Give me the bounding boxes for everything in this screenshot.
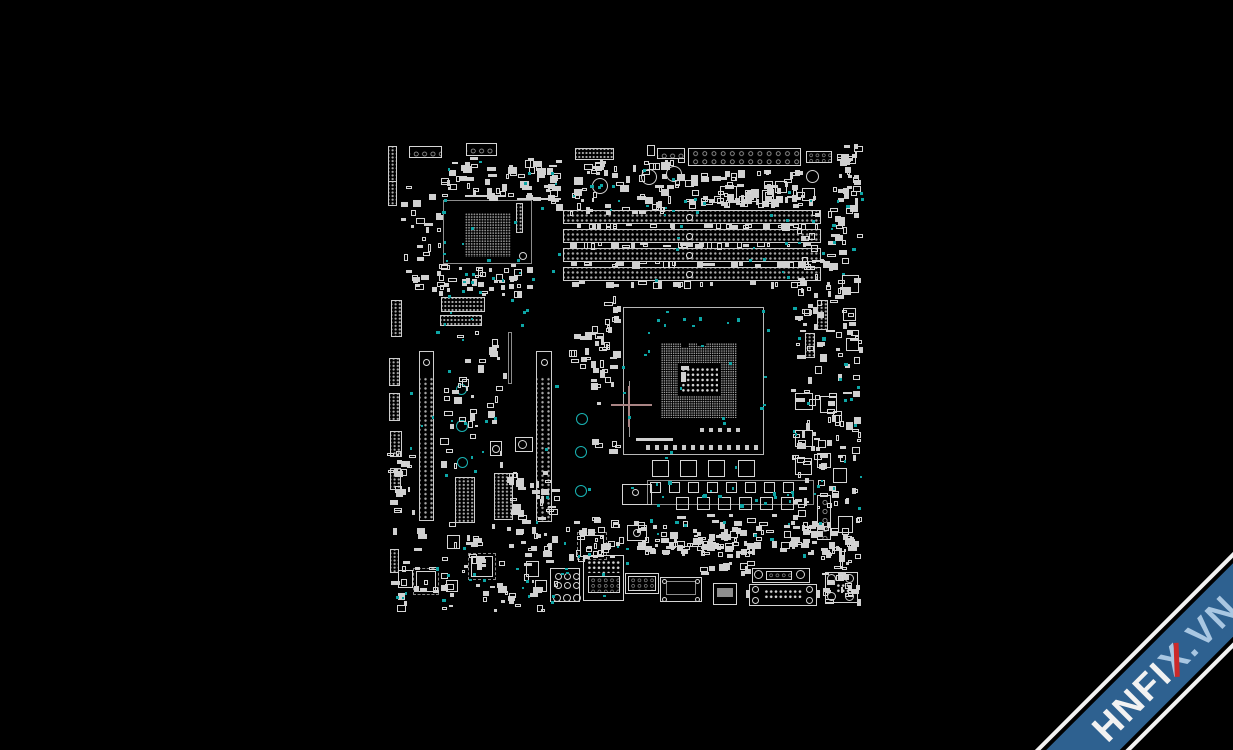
smd-part xyxy=(830,300,838,303)
smd-part xyxy=(552,536,559,543)
smd-part xyxy=(570,243,577,248)
test-point xyxy=(737,318,740,321)
smd-part xyxy=(701,173,707,176)
smd-part xyxy=(854,357,859,364)
smd-part xyxy=(731,173,738,180)
smd-part xyxy=(544,546,550,551)
pin-header xyxy=(390,549,399,573)
test-point xyxy=(831,228,833,230)
smd-part xyxy=(527,267,533,274)
smd-part xyxy=(817,342,822,347)
smd-part xyxy=(515,604,520,608)
smd-part xyxy=(848,585,852,590)
smd-part xyxy=(846,536,852,540)
smd-part xyxy=(509,478,513,485)
smd-part xyxy=(725,171,730,176)
smd-part xyxy=(541,609,545,612)
smd-part xyxy=(465,195,505,197)
smd-part xyxy=(615,263,618,266)
smd-part xyxy=(771,282,774,289)
test-point xyxy=(566,572,568,574)
smd-part xyxy=(756,199,759,205)
smd-part xyxy=(538,517,547,520)
smd-part xyxy=(606,210,611,214)
smd-part xyxy=(670,160,674,166)
pin-header xyxy=(388,146,397,182)
test-point xyxy=(664,324,667,327)
test-point xyxy=(396,596,399,599)
selection-crosshair[interactable] xyxy=(628,386,630,427)
smd-part xyxy=(707,242,712,249)
smd-part xyxy=(577,223,580,228)
dimm-slot-3[interactable] xyxy=(563,248,821,262)
smd-part xyxy=(509,597,515,604)
test-point xyxy=(565,568,567,570)
smd-part xyxy=(556,204,564,211)
smd-part xyxy=(414,586,419,592)
test-point xyxy=(463,547,466,550)
smd-part xyxy=(843,575,849,580)
pin-header xyxy=(388,181,397,206)
smd-part xyxy=(476,584,479,587)
smd-part xyxy=(541,496,544,503)
smd-part xyxy=(448,187,451,190)
smd-part xyxy=(490,586,495,589)
test-point xyxy=(710,490,712,492)
smd-part xyxy=(611,242,618,248)
smd-part xyxy=(655,185,664,188)
smd-part xyxy=(823,261,830,268)
smd-part xyxy=(393,528,397,535)
test-point xyxy=(696,211,699,214)
smd-part xyxy=(611,382,614,386)
smd-part xyxy=(831,531,838,536)
test-point xyxy=(602,573,605,576)
test-point xyxy=(555,385,558,388)
smd-part xyxy=(446,449,453,453)
smd-part xyxy=(691,180,698,185)
smd-part xyxy=(466,278,470,284)
test-point xyxy=(444,241,446,243)
smd-part xyxy=(815,213,821,217)
test-point xyxy=(561,573,563,575)
test-point xyxy=(644,354,647,357)
smd-part xyxy=(697,262,703,268)
smd-part xyxy=(827,580,835,583)
smd-part xyxy=(858,340,861,343)
test-point xyxy=(485,420,488,423)
smd-part xyxy=(608,541,616,547)
smd-part xyxy=(795,499,802,502)
smd-part xyxy=(518,515,527,520)
smd-part xyxy=(838,198,843,202)
smd-part xyxy=(644,161,649,166)
smd-part xyxy=(721,177,727,180)
smd-part xyxy=(754,542,758,546)
pcie-x16-slot[interactable] xyxy=(419,351,434,521)
test-point xyxy=(803,554,806,557)
capacitor xyxy=(806,170,819,183)
smd-part xyxy=(450,424,454,430)
smd-part xyxy=(639,211,646,215)
atx-24pin-power-connector[interactable] xyxy=(688,148,801,166)
smd-part xyxy=(645,537,649,543)
test-point xyxy=(860,192,863,195)
test-point xyxy=(517,259,520,262)
smd-part xyxy=(798,203,802,206)
smd-part xyxy=(802,431,806,437)
smd-part xyxy=(836,575,843,581)
smd-part xyxy=(401,579,407,586)
smd-part xyxy=(424,223,433,226)
test-point xyxy=(675,521,678,524)
smd-part xyxy=(808,377,812,384)
test-point xyxy=(643,169,646,172)
smd-part xyxy=(423,252,429,256)
test-point xyxy=(786,219,788,221)
smd-part xyxy=(571,359,580,364)
test-point xyxy=(852,248,855,251)
smd-part xyxy=(737,242,742,248)
smd-part xyxy=(403,561,410,564)
test-point xyxy=(479,161,481,163)
selection-crosshair[interactable] xyxy=(611,404,652,406)
smd-part xyxy=(584,242,587,249)
smd-part xyxy=(847,330,853,335)
test-point xyxy=(666,311,669,314)
smd-part xyxy=(543,471,547,475)
smd-part xyxy=(824,526,829,531)
smd-part xyxy=(527,193,532,199)
capacitor xyxy=(573,594,581,602)
smd-part xyxy=(803,522,808,529)
smd-part xyxy=(791,389,797,392)
smd-part xyxy=(593,551,598,558)
smd-part xyxy=(643,243,648,248)
smd-part xyxy=(600,370,605,377)
test-point xyxy=(672,178,675,181)
smd-part xyxy=(585,357,591,360)
test-point xyxy=(448,168,450,170)
test-point xyxy=(812,220,815,223)
smd-part xyxy=(475,331,479,335)
smd-part xyxy=(541,489,549,494)
smd-part xyxy=(422,237,426,241)
smd-part xyxy=(595,538,598,542)
test-point xyxy=(524,182,526,184)
smd-part xyxy=(792,195,797,202)
smd-part xyxy=(829,393,837,398)
power-connector xyxy=(628,576,656,591)
smd-part xyxy=(494,280,498,283)
smd-part xyxy=(546,560,554,563)
test-point xyxy=(844,399,847,402)
front-panel-header[interactable] xyxy=(455,477,475,523)
smd-part xyxy=(755,264,760,267)
test-point xyxy=(753,247,755,249)
smd-part xyxy=(404,254,408,261)
smd-part xyxy=(600,536,603,539)
test-point xyxy=(521,324,524,327)
smd-part xyxy=(700,282,703,287)
test-point xyxy=(793,307,796,310)
smd-part xyxy=(537,177,540,182)
smd-part xyxy=(678,158,685,163)
smd-part xyxy=(667,185,674,189)
smd-part xyxy=(449,605,453,608)
dimm-slot-4[interactable] xyxy=(563,267,821,281)
smd-part xyxy=(798,510,806,517)
test-point xyxy=(668,481,672,485)
fan-header[interactable] xyxy=(657,148,685,159)
smd-part xyxy=(582,188,587,191)
smd-part xyxy=(797,355,806,358)
smd-part xyxy=(842,567,848,570)
smd-part xyxy=(707,514,715,517)
smd-part xyxy=(452,390,459,395)
smd-part xyxy=(442,607,446,610)
smd-part xyxy=(740,261,743,266)
smd-part xyxy=(532,527,536,534)
test-point xyxy=(612,185,615,188)
smd-part xyxy=(745,566,749,572)
smd-part xyxy=(464,565,468,568)
smd-part xyxy=(579,281,584,284)
test-point xyxy=(410,447,412,449)
smd-part xyxy=(855,554,861,559)
test-point xyxy=(767,329,770,332)
smd-part xyxy=(439,215,443,220)
smd-part xyxy=(442,557,448,561)
smd-part xyxy=(594,543,597,549)
smd-part xyxy=(677,516,686,519)
smd-part xyxy=(852,447,860,454)
test-point xyxy=(763,404,766,407)
smd-part xyxy=(848,313,854,317)
smd-part xyxy=(840,421,845,427)
smd-part xyxy=(801,224,806,231)
smd-part xyxy=(677,545,683,551)
smd-part xyxy=(821,548,828,551)
smd-part xyxy=(781,223,789,230)
smd-part xyxy=(487,193,495,199)
test-point xyxy=(822,252,825,255)
smd-part xyxy=(724,193,728,197)
mosfet xyxy=(697,497,710,510)
smd-part xyxy=(723,534,731,540)
test-point xyxy=(795,433,798,436)
smd-part xyxy=(444,396,450,401)
cpu-power-connector[interactable] xyxy=(806,151,832,163)
smd-part xyxy=(846,498,849,501)
test-point xyxy=(463,281,466,284)
smd-part xyxy=(785,197,789,203)
inductor xyxy=(708,460,725,477)
dimm-slot-1[interactable] xyxy=(563,210,821,224)
test-point xyxy=(735,466,738,469)
smd-part xyxy=(798,278,805,281)
test-point xyxy=(526,580,529,583)
smd-part xyxy=(670,532,678,539)
smd-part xyxy=(784,525,790,528)
smd-part xyxy=(701,551,705,555)
smd-part xyxy=(613,226,617,229)
test-point xyxy=(749,259,753,263)
test-point xyxy=(487,259,490,262)
test-point xyxy=(792,494,794,496)
test-point xyxy=(514,221,517,224)
smd-part xyxy=(709,199,716,203)
smd-part xyxy=(525,553,531,557)
smd-part xyxy=(390,500,398,505)
test-point xyxy=(770,538,774,542)
capacitor xyxy=(806,586,813,593)
smd-part xyxy=(848,158,853,161)
smd-part xyxy=(475,425,478,428)
smd-part xyxy=(500,451,503,454)
smd-part xyxy=(681,372,686,382)
smd-part xyxy=(805,501,809,504)
smd-part xyxy=(589,209,592,212)
smd-part xyxy=(793,515,798,519)
smd-part xyxy=(772,541,777,547)
smd-part xyxy=(406,186,412,189)
smd-part xyxy=(556,160,562,163)
smd-part xyxy=(834,501,838,506)
test-point xyxy=(494,417,497,420)
smd-part xyxy=(704,177,708,182)
fan-header[interactable] xyxy=(466,143,497,156)
smd-part xyxy=(801,195,805,198)
smd-part xyxy=(396,454,399,458)
smd-part xyxy=(454,463,457,469)
test-point xyxy=(839,378,842,381)
test-point xyxy=(545,448,548,451)
smd-part xyxy=(483,591,488,596)
smd-part xyxy=(613,522,618,525)
smd-part xyxy=(753,192,758,198)
smd-part xyxy=(592,439,599,445)
smd-part xyxy=(848,590,853,596)
smd-part xyxy=(533,161,542,167)
test-point xyxy=(465,273,468,276)
test-point xyxy=(850,398,853,401)
smd-part xyxy=(697,532,701,536)
boardview-canvas[interactable]: HNFIX.VN xyxy=(0,0,1233,750)
test-point xyxy=(807,402,810,405)
fan-header[interactable] xyxy=(409,146,442,158)
smd-part xyxy=(636,438,673,441)
smd-part xyxy=(663,261,669,268)
smd-part xyxy=(684,281,691,288)
test-point xyxy=(623,392,625,394)
smd-part xyxy=(757,242,766,247)
smd-part xyxy=(662,174,668,179)
smd-part xyxy=(663,525,667,529)
smd-part xyxy=(724,203,727,207)
smd-part xyxy=(580,364,586,369)
smd-part xyxy=(734,521,741,526)
smd-part xyxy=(840,446,846,449)
test-point xyxy=(774,496,777,499)
smd-part xyxy=(454,397,462,404)
smd-part xyxy=(820,454,827,458)
test-point xyxy=(469,579,472,582)
smd-part xyxy=(854,278,861,283)
test-point xyxy=(451,420,453,422)
smd-part xyxy=(692,190,699,197)
smd-part xyxy=(661,532,667,537)
smd-part xyxy=(432,287,438,292)
smd-part xyxy=(661,538,669,543)
smd-part xyxy=(489,347,497,354)
smd-part xyxy=(492,524,495,529)
smd-part xyxy=(525,160,531,167)
test-point xyxy=(546,496,548,498)
smd-part xyxy=(437,228,441,233)
capacitor xyxy=(564,582,571,589)
smd-part xyxy=(411,210,416,216)
smd-part xyxy=(849,322,856,326)
smd-part xyxy=(792,455,796,460)
smd-part xyxy=(603,161,606,164)
test-point xyxy=(464,422,467,425)
test-point xyxy=(656,483,659,486)
smd-part xyxy=(828,401,835,406)
smd-part xyxy=(477,563,482,570)
smd-part xyxy=(704,224,713,228)
test-point xyxy=(665,207,667,209)
capacitor xyxy=(573,582,580,589)
smd-part xyxy=(767,189,774,196)
test-point xyxy=(833,241,836,244)
smd-part xyxy=(441,461,447,468)
capacitor xyxy=(806,597,813,604)
smd-part xyxy=(543,551,552,556)
smd-part xyxy=(552,199,559,202)
smd-part xyxy=(745,552,749,557)
smd-part xyxy=(470,157,478,160)
smd-part xyxy=(784,531,791,538)
smd-part xyxy=(854,213,859,218)
smd-part xyxy=(461,165,465,171)
smd-part xyxy=(852,488,856,494)
test-point xyxy=(755,499,759,503)
test-point xyxy=(536,521,539,524)
pch-bga-grid[interactable] xyxy=(465,213,511,257)
smd-part xyxy=(508,193,514,197)
smd-part xyxy=(476,267,483,272)
smd-part xyxy=(607,226,611,229)
smd-part xyxy=(668,196,671,203)
smd-part xyxy=(489,287,493,290)
test-point xyxy=(528,595,530,597)
smd-part xyxy=(809,310,812,315)
smd-part xyxy=(835,216,842,222)
smd-part xyxy=(820,354,827,361)
test-point xyxy=(617,546,619,548)
smd-part xyxy=(836,225,843,230)
smd-part xyxy=(656,202,660,209)
smd-part xyxy=(854,144,858,148)
smd-part xyxy=(821,556,825,560)
mosfet xyxy=(745,482,756,493)
smd-part xyxy=(481,291,488,294)
smd-part xyxy=(745,224,752,228)
test-point xyxy=(552,270,555,273)
test-point xyxy=(729,362,732,365)
smd-part xyxy=(655,261,659,264)
